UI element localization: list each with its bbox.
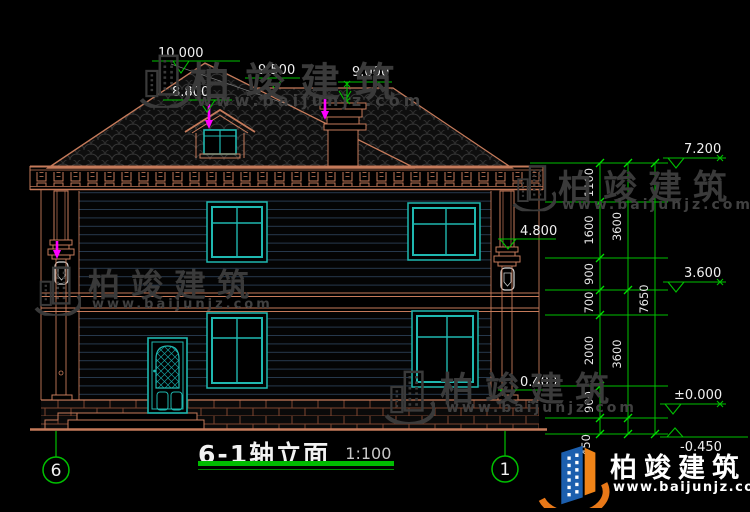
column-right-cap3	[494, 256, 520, 262]
axis-number-right: 1	[500, 460, 511, 480]
column-left-cap1	[50, 240, 72, 245]
dentil-band	[32, 172, 542, 186]
title-underline	[198, 461, 394, 466]
elevation-label-dormer: 8.800	[172, 85, 209, 100]
axis-bubble-left: 6	[43, 431, 69, 483]
window-frame-outer	[408, 203, 480, 260]
brand-logo-icon	[534, 440, 610, 508]
dim-value: 3600	[610, 212, 624, 241]
dim-value: 1600	[582, 215, 596, 244]
elevation-label-hip: 9.500	[258, 63, 295, 78]
logo-building-orange	[585, 448, 596, 496]
elevation-triangle-ground	[667, 428, 683, 437]
elevation-triangle-hip	[267, 78, 283, 89]
window-1f-center	[207, 313, 267, 388]
column-left-cap4	[52, 255, 70, 259]
door-arch-lattice	[156, 346, 179, 388]
window-2f-left	[207, 202, 267, 262]
dim-value: 900	[582, 391, 596, 413]
door-step-2	[68, 420, 204, 429]
elevation-label-eave: 7.200	[684, 142, 721, 157]
cornice	[30, 166, 543, 190]
axis-bubble-right: 1	[492, 431, 518, 482]
brand-block: 柏竣建筑 www.baijunjz.com	[534, 438, 750, 508]
column-left-cap3	[48, 249, 74, 255]
logo-building-blue	[561, 446, 582, 504]
window-frame-outer	[412, 311, 478, 387]
column-right-shield-inner	[504, 273, 511, 286]
dim-value: 700	[582, 292, 596, 314]
elevation-triangle-ridge	[173, 61, 189, 73]
door-knob	[153, 370, 156, 373]
dim-value: 900	[582, 263, 596, 285]
column-right-cap2	[499, 252, 515, 256]
plinth	[30, 400, 547, 430]
chimney-cap	[324, 109, 362, 117]
dim-value: 1100	[582, 168, 596, 197]
chimney-neck	[327, 117, 359, 124]
elevation-label-ridge: 10.000	[158, 46, 204, 61]
column-left-cap2	[53, 245, 69, 249]
elevation-label-chimney: 9.000	[352, 65, 389, 80]
elevation-triangle-zero	[665, 404, 681, 414]
entry-door	[148, 338, 187, 413]
window-2f-right	[408, 203, 480, 260]
column-left	[48, 191, 74, 400]
title-underline-thin	[198, 469, 394, 470]
elevation-label-floor2: 3.600	[684, 266, 721, 281]
window-1f-right	[412, 311, 478, 387]
dimension-chain: 1100 1600 900 700 2000 900 450 3600 3600…	[530, 159, 668, 456]
column-right	[494, 191, 520, 400]
elevation-triangle-eave	[668, 158, 684, 168]
column-left-shield-inner	[58, 267, 65, 280]
elevation-label-zero: ±0.000	[674, 388, 722, 403]
chain-text-inner: 1100 1600 900 700 2000 900 450	[579, 168, 596, 456]
column-left-shaft-upper	[54, 191, 68, 240]
elevation-label-capital: 4.800	[520, 224, 557, 239]
column-right-cap4	[498, 262, 516, 266]
roof	[48, 63, 512, 168]
elevation-triangle-floor2	[668, 282, 684, 292]
dim-value: 3600	[610, 339, 624, 368]
cad-canvas: 10.000 9.500 9.000 8.800 7.200 4.800 3.6…	[0, 0, 750, 512]
chimney-shaft	[328, 130, 358, 168]
chimney-flange	[324, 124, 366, 130]
dim-value: 2000	[582, 336, 596, 365]
column-left-bracket	[59, 371, 63, 375]
dim-total: 7650	[637, 284, 651, 313]
axis-number-left: 6	[51, 461, 62, 481]
chimney-cap-top	[320, 103, 366, 109]
brand-url: www.baijunjz.com	[613, 480, 750, 495]
door-step-1	[77, 413, 197, 420]
column-left-base	[52, 395, 72, 400]
elevation-label-sill: 0.400	[520, 375, 557, 390]
